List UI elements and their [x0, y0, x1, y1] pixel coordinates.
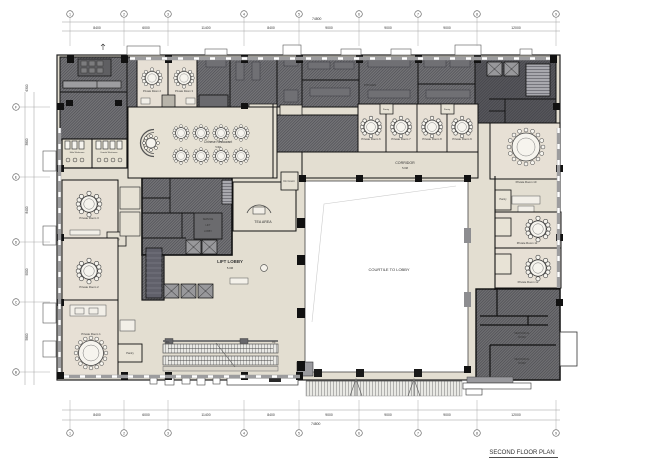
svg-text:6: 6	[358, 432, 360, 436]
svg-text:11400: 11400	[201, 26, 210, 30]
svg-text:8: 8	[476, 13, 478, 17]
svg-text:12000: 12000	[511, 413, 521, 417]
svg-text:MECHANICAL: MECHANICAL	[514, 332, 530, 335]
svg-text:3800: 3800	[25, 138, 29, 145]
svg-text:5.0M: 5.0M	[215, 146, 220, 149]
svg-text:B: B	[15, 371, 17, 375]
svg-text:Dn: Dn	[166, 340, 170, 344]
svg-text:74800: 74800	[312, 17, 322, 21]
svg-text:Dn Count: Dn Count	[284, 179, 295, 183]
svg-text:LIFT LOBBY: LIFT LOBBY	[217, 259, 243, 264]
svg-text:8400: 8400	[267, 26, 275, 30]
svg-text:Private Room 11: Private Room 11	[517, 241, 538, 245]
svg-text:Private Room 7: Private Room 7	[391, 137, 411, 141]
svg-text:5: 5	[298, 13, 300, 17]
svg-text:9: 9	[555, 432, 557, 436]
svg-text:9000: 9000	[384, 26, 392, 30]
svg-text:7: 7	[417, 432, 419, 436]
svg-text:8400: 8400	[93, 413, 101, 417]
svg-text:2: 2	[123, 13, 125, 17]
svg-text:9000: 9000	[384, 413, 392, 417]
svg-text:8: 8	[476, 432, 478, 436]
svg-text:Private Room 10: Private Room 10	[516, 180, 537, 184]
svg-text:3: 3	[167, 13, 169, 17]
svg-text:Pantry: Pantry	[500, 198, 508, 201]
svg-text:74800: 74800	[311, 422, 321, 426]
svg-text:5: 5	[298, 432, 300, 436]
svg-text:1: 1	[69, 13, 71, 17]
svg-text:LOBBY: LOBBY	[204, 230, 212, 233]
svg-text:9000: 9000	[325, 26, 333, 30]
svg-text:7: 7	[417, 13, 419, 17]
svg-text:SECOND FLOOR PLAN: SECOND FLOOR PLAN	[489, 450, 554, 456]
svg-text:Private Room 6: Private Room 6	[361, 137, 381, 141]
svg-text:9000: 9000	[443, 413, 451, 417]
svg-text:TEA AREA: TEA AREA	[254, 220, 272, 224]
svg-text:9: 9	[555, 13, 557, 17]
svg-text:8400: 8400	[267, 413, 275, 417]
svg-text:Up: Up	[272, 340, 276, 344]
svg-text:9000: 9000	[25, 268, 29, 275]
svg-text:KITCHEN: KITCHEN	[364, 83, 376, 87]
svg-text:Private Room 2: Private Room 2	[79, 285, 99, 289]
svg-text:9000: 9000	[443, 26, 451, 30]
svg-text:4: 4	[243, 13, 245, 17]
svg-text:4: 4	[243, 432, 245, 436]
svg-text:6300: 6300	[25, 84, 29, 91]
svg-text:6000: 6000	[142, 413, 150, 417]
svg-text:9000: 9000	[325, 413, 333, 417]
svg-text:ROOM: ROOM	[518, 363, 525, 365]
svg-text:Pantry: Pantry	[126, 351, 134, 355]
svg-text:Private Room 3: Private Room 3	[79, 216, 99, 220]
svg-text:6: 6	[358, 13, 360, 17]
svg-text:Pantry: Pantry	[444, 108, 451, 111]
svg-text:6000: 6000	[142, 26, 150, 30]
svg-text:Female Washroom: Female Washroom	[101, 152, 118, 154]
svg-text:1: 1	[69, 432, 71, 436]
svg-text:SERVICE: SERVICE	[203, 218, 214, 221]
svg-text:Private Room 3: Private Room 3	[175, 89, 193, 93]
svg-text:Pantry: Pantry	[383, 108, 390, 111]
svg-text:Private Room 12: Private Room 12	[518, 280, 539, 284]
svg-text:11400: 11400	[201, 413, 210, 417]
svg-text:COURTILE TO LOBBY: COURTILE TO LOBBY	[368, 267, 409, 272]
svg-text:Male Washroom: Male Washroom	[70, 152, 85, 154]
svg-text:LIFT: LIFT	[206, 224, 211, 227]
svg-text:MECHANICAL: MECHANICAL	[514, 358, 530, 361]
svg-text:8400: 8400	[93, 26, 101, 30]
svg-text:Private Room 8: Private Room 8	[422, 137, 442, 141]
svg-text:Private Room 9: Private Room 9	[452, 137, 472, 141]
svg-text:12000: 12000	[511, 26, 521, 30]
svg-text:2: 2	[123, 432, 125, 436]
svg-text:5.0M: 5.0M	[402, 166, 408, 170]
svg-text:CORRIDOR: CORRIDOR	[395, 161, 415, 165]
svg-text:ROOM: ROOM	[518, 337, 525, 339]
svg-text:5.0M: 5.0M	[227, 266, 234, 270]
svg-text:F: F	[15, 106, 17, 110]
svg-text:Chinese Restaurant: Chinese Restaurant	[204, 140, 232, 144]
svg-text:Private Room 1: Private Room 1	[81, 332, 101, 336]
svg-text:Private Room 2: Private Room 2	[143, 89, 161, 93]
svg-text:3: 3	[167, 432, 169, 436]
svg-text:8400: 8400	[25, 206, 29, 213]
svg-text:5800: 5800	[25, 333, 29, 340]
svg-text:E: E	[15, 176, 17, 180]
